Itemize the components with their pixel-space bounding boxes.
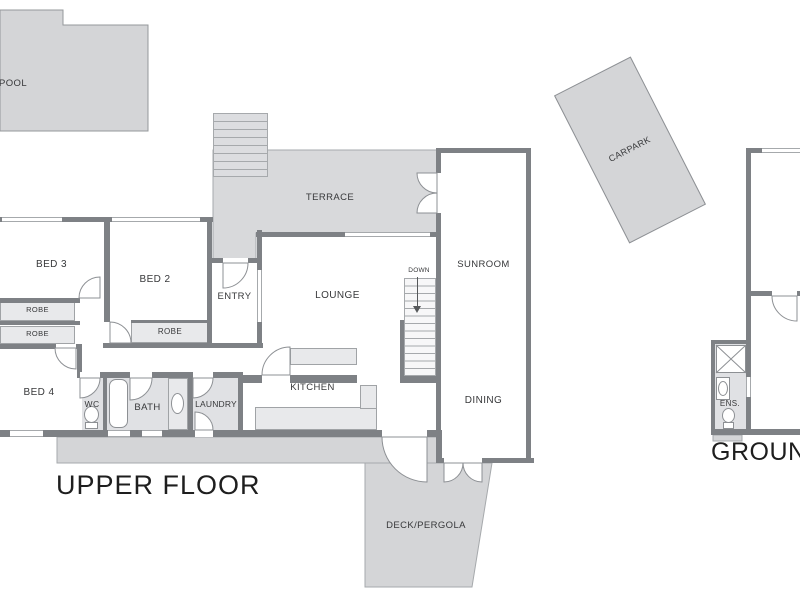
area-label-deck-pergola: DECK/PERGOLA — [366, 521, 486, 531]
kitchen-hall-door-swing — [262, 347, 290, 375]
laundry-door-swing — [193, 378, 213, 398]
room-label-entry: ENTRY — [212, 292, 257, 302]
dining-double-door-right-swing — [463, 463, 482, 482]
room-label-laundry: LAUNDRY — [192, 400, 240, 409]
room-label-kitchen: KITCHEN — [255, 383, 370, 393]
kitchen-deck-door-swing — [382, 437, 427, 482]
room-label-robe1: ROBE — [0, 306, 75, 314]
area-label-carpark: CARPARK — [607, 135, 652, 165]
room-label-dining: DINING — [441, 395, 526, 406]
room-label-lounge: LOUNGE — [270, 290, 405, 301]
room-label-robe2: ROBE — [0, 330, 75, 338]
wc-door-swing — [80, 378, 100, 398]
stairs-down-label: DOWN — [402, 267, 436, 274]
ground-room-door-swing — [772, 296, 797, 321]
room-label-sunroom: SUNROOM — [441, 260, 526, 270]
bed2-door-swing — [110, 322, 131, 343]
room-label-bath: BATH — [110, 403, 185, 413]
area-label-pool: POOL — [0, 79, 35, 89]
room-label-bed4: BED 4 — [0, 387, 78, 398]
room-label-bed2: BED 2 — [105, 274, 205, 285]
entry-door-swing — [223, 263, 248, 288]
bath-door-swing — [130, 378, 152, 400]
ground-floor-title: GROUND FLOOR — [711, 438, 800, 467]
sunroom-french-door-top-swing — [417, 173, 437, 193]
bed3-door-swing — [79, 277, 100, 298]
area-label-terrace: TERRACE — [280, 193, 380, 203]
laundry-deck-door-swing — [195, 412, 213, 430]
floor-plan-canvas: POOL TERRACE CARPARK DECK/PERGOLA BED 3 … — [0, 0, 800, 600]
bed4-door-swing — [55, 348, 76, 369]
room-label-bed3: BED 3 — [0, 259, 103, 270]
room-label-robe3: ROBE — [131, 328, 209, 337]
shower-x-icon — [716, 345, 746, 373]
sunroom-french-door-bottom-swing — [417, 193, 437, 213]
upper-floor-title: UPPER FLOOR — [56, 470, 261, 501]
dining-double-door-left-swing — [444, 463, 463, 482]
room-label-ens: ENS. — [711, 400, 749, 409]
room-label-wc: WC — [80, 400, 104, 409]
